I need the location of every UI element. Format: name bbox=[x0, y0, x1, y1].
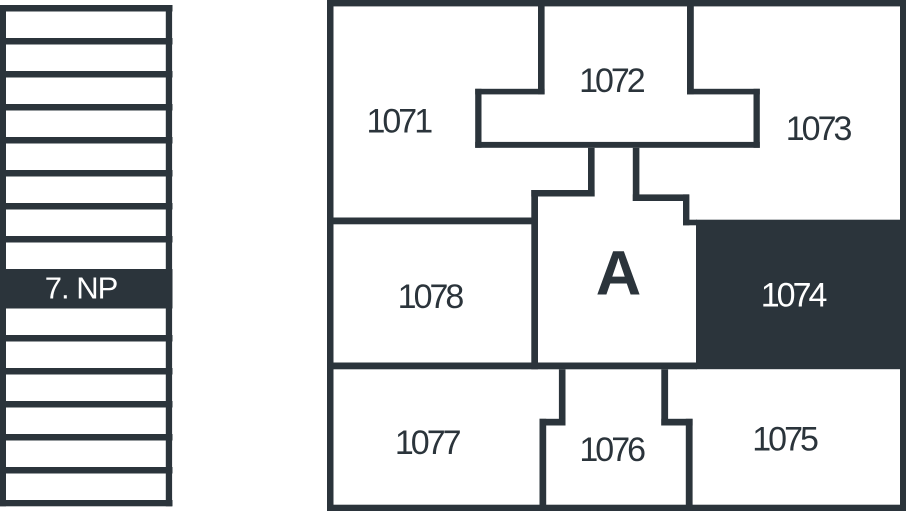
svg-text:1076: 1076 bbox=[579, 431, 645, 469]
svg-text:1073: 1073 bbox=[786, 110, 852, 148]
svg-text:1077: 1077 bbox=[395, 424, 461, 462]
svg-text:1078: 1078 bbox=[398, 278, 464, 316]
svg-text:1072: 1072 bbox=[579, 62, 645, 100]
svg-text:1075: 1075 bbox=[752, 421, 818, 459]
svg-text:A: A bbox=[596, 239, 642, 309]
svg-text:1074: 1074 bbox=[761, 276, 827, 314]
svg-text:7. NP: 7. NP bbox=[45, 271, 118, 306]
svg-text:1071: 1071 bbox=[366, 102, 432, 140]
